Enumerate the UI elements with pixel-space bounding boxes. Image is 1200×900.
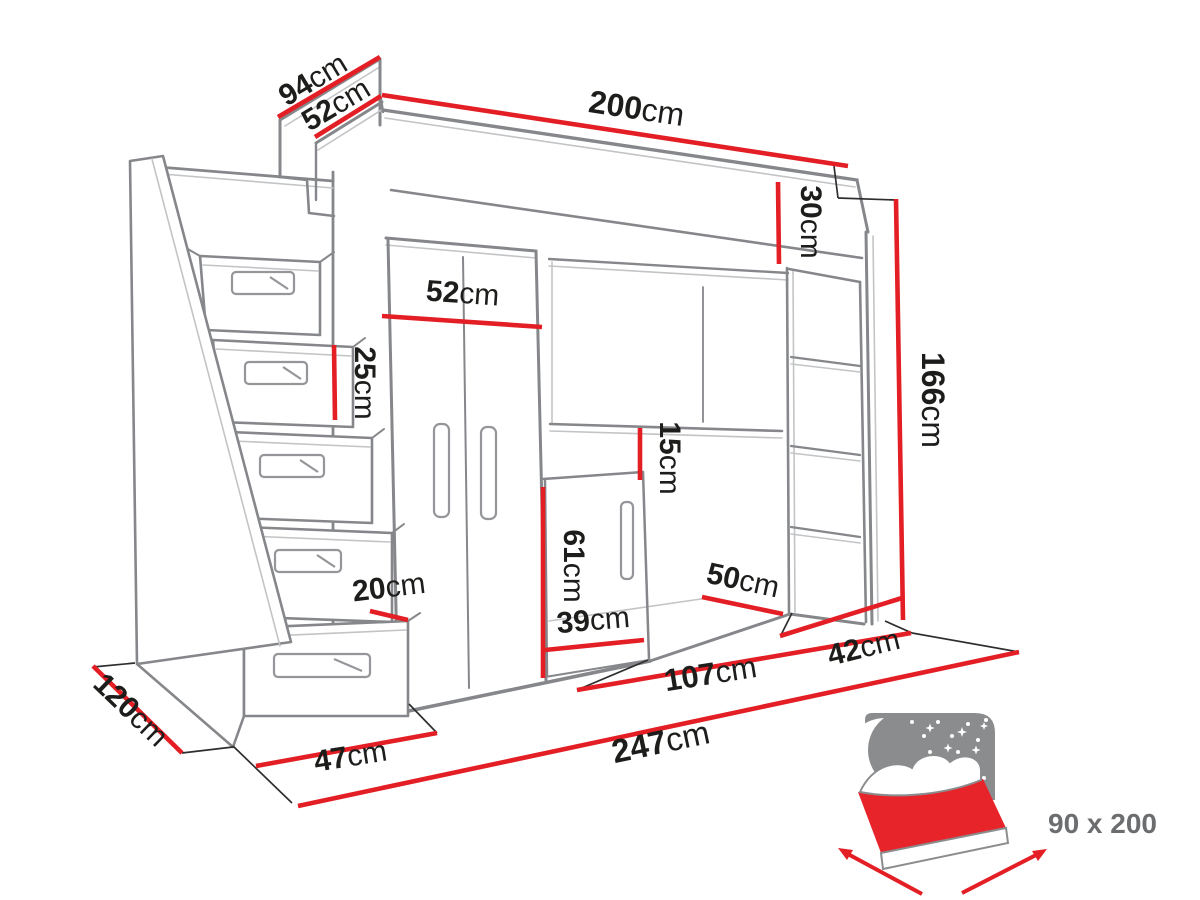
dim-label-47: 47cm: [312, 735, 390, 779]
dim-label-39: 39cm: [555, 601, 631, 640]
wardrobe-top: [386, 238, 536, 251]
shelving-right-edge: [860, 282, 866, 622]
bed-icon: 90 x 200: [838, 710, 1157, 894]
dim-shelf-gap-15: 15cm: [640, 421, 686, 494]
cabinet-door-handle: [621, 502, 633, 579]
diagram-page: 94cm 52cm 200cm 30cm 166cm 52cm 25cm: [0, 0, 1200, 900]
dim-label-61: 61cm: [557, 529, 590, 602]
dim-stairs-width-47: 47cm: [256, 733, 437, 779]
unit-right-side: [866, 232, 878, 624]
dim-wardrobe-width-52: 52cm: [382, 275, 542, 327]
cabinet-right-edge: [643, 472, 649, 659]
shelving-top: [789, 269, 860, 282]
dim-label-30: 30cm: [794, 185, 827, 258]
dim-label-52-wardrobe: 52cm: [425, 275, 500, 313]
platform-notches: [280, 177, 334, 216]
dim-fascia-height-30: 30cm: [778, 182, 827, 264]
cabinet-bottom: [545, 660, 649, 677]
furniture-dimension-drawing: 94cm 52cm 200cm 30cm 166cm 52cm 25cm: [0, 0, 1200, 900]
niche-ceiling: [549, 259, 788, 273]
dim-label-42: 42cm: [824, 623, 903, 673]
bed-size-label: 90 x 200: [1048, 808, 1157, 839]
shelving-left-edge: [787, 268, 789, 613]
dim-label-25: 25cm: [348, 346, 381, 419]
dim-label-200: 200cm: [586, 83, 686, 133]
dim-label-50: 50cm: [704, 557, 783, 605]
dim-label-107: 107cm: [662, 649, 759, 698]
dim-label-247: 247cm: [608, 713, 713, 770]
open-shelving: [787, 268, 866, 622]
dim-label-15: 15cm: [653, 421, 686, 494]
dim-cabinet-width-39: 39cm: [545, 601, 644, 650]
dim-shelving-width-50: 50cm: [702, 557, 783, 614]
dim-label-166: 166cm: [915, 352, 951, 448]
dim-bed-length-200: 200cm: [382, 83, 848, 166]
staircase: [130, 156, 420, 747]
dim-unit-height-166: 166cm: [896, 199, 951, 620]
wardrobe-door-handle-right: [481, 427, 496, 519]
wardrobe-door-handle-left: [434, 424, 449, 517]
cabinet-top: [543, 472, 643, 479]
dim-shelving-depth-42: 42cm: [780, 598, 903, 673]
